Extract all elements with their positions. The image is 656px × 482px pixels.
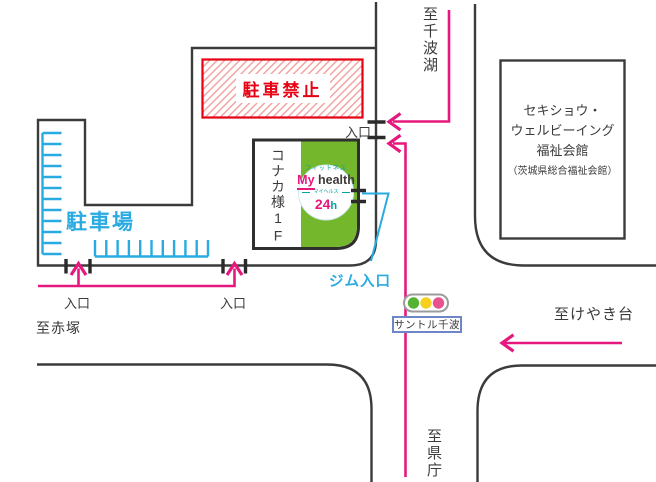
logo-my: My [297, 173, 314, 190]
no-parking-text: 駐車禁止 [236, 74, 330, 103]
logo-brand-text: My health [297, 174, 355, 187]
label-welfare-hall: セキショウ・ ウェルビーイング 福祉会館 （茨城県総合福祉会館） [500, 101, 625, 178]
label-gym-entrance: ジム入口 [329, 270, 391, 291]
parking-comb-vertical [43, 133, 62, 254]
welfare-hall-line1: セキショウ・ [500, 101, 625, 121]
traffic-light-icon [404, 295, 448, 312]
label-parking-lot: 駐車場 [66, 206, 135, 236]
logo-rule-left [302, 192, 310, 193]
label-to-senba-lake: 至千波湖 [419, 6, 440, 74]
label-to-keyakidai: 至けやき台 [554, 303, 634, 324]
road-south-edge-west [37, 365, 372, 482]
parking-space-marks [43, 133, 209, 257]
logo-reading-text: マイヘルス [297, 190, 355, 195]
logo-fitness-text: フィットネス [297, 166, 355, 172]
welfare-hall-subtitle: （茨城県総合福祉会館） [500, 166, 625, 178]
logo-health: health [318, 173, 355, 187]
parking-comb-horizontal [95, 240, 208, 257]
label-to-kencho: 至県庁 [423, 428, 444, 479]
label-entrance-right: 入口 [220, 293, 246, 312]
label-entrance-top: 入口 [345, 122, 371, 141]
label-to-akatsuka: 至赤塚 [36, 318, 81, 338]
label-no-parking: 駐車禁止 [202, 59, 363, 117]
logo-h: h [330, 200, 337, 212]
access-map: 至千波湖 入口 セキショウ・ ウェルビーイング 福祉会館 （茨城県総合福祉会館）… [0, 0, 656, 482]
logo-reading: マイヘルス [313, 190, 338, 195]
logo-rule-right [342, 192, 350, 193]
welfare-hall-line2: ウェルビーイング [500, 121, 625, 141]
road-south-edge-east [478, 366, 656, 482]
welfare-hall-line3: 福祉会館 [500, 141, 625, 161]
label-entrance-left: 入口 [64, 293, 90, 312]
gym-logo: フィットネス My health マイヘルス 24h [297, 166, 355, 213]
intersection-name-badge: サントル千波 [392, 316, 462, 333]
logo-hours-text: 24h [297, 197, 355, 213]
logo-24: 24 [315, 196, 331, 212]
label-konaka-tenant: コナカ様1F [268, 148, 288, 245]
route-main-vertical [393, 144, 406, 478]
